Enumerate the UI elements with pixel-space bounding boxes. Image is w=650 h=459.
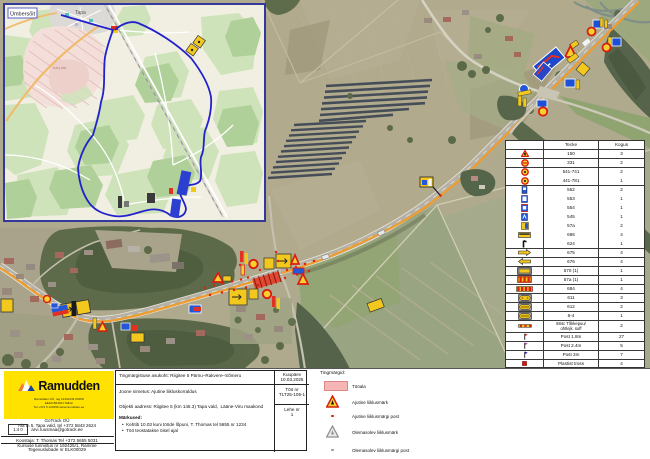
svg-text:Tapa: Tapa (75, 10, 86, 16)
svg-text:harj.ala: harj.ala (53, 65, 67, 70)
svg-text:Ümbersõit: Ümbersõit (10, 11, 36, 18)
